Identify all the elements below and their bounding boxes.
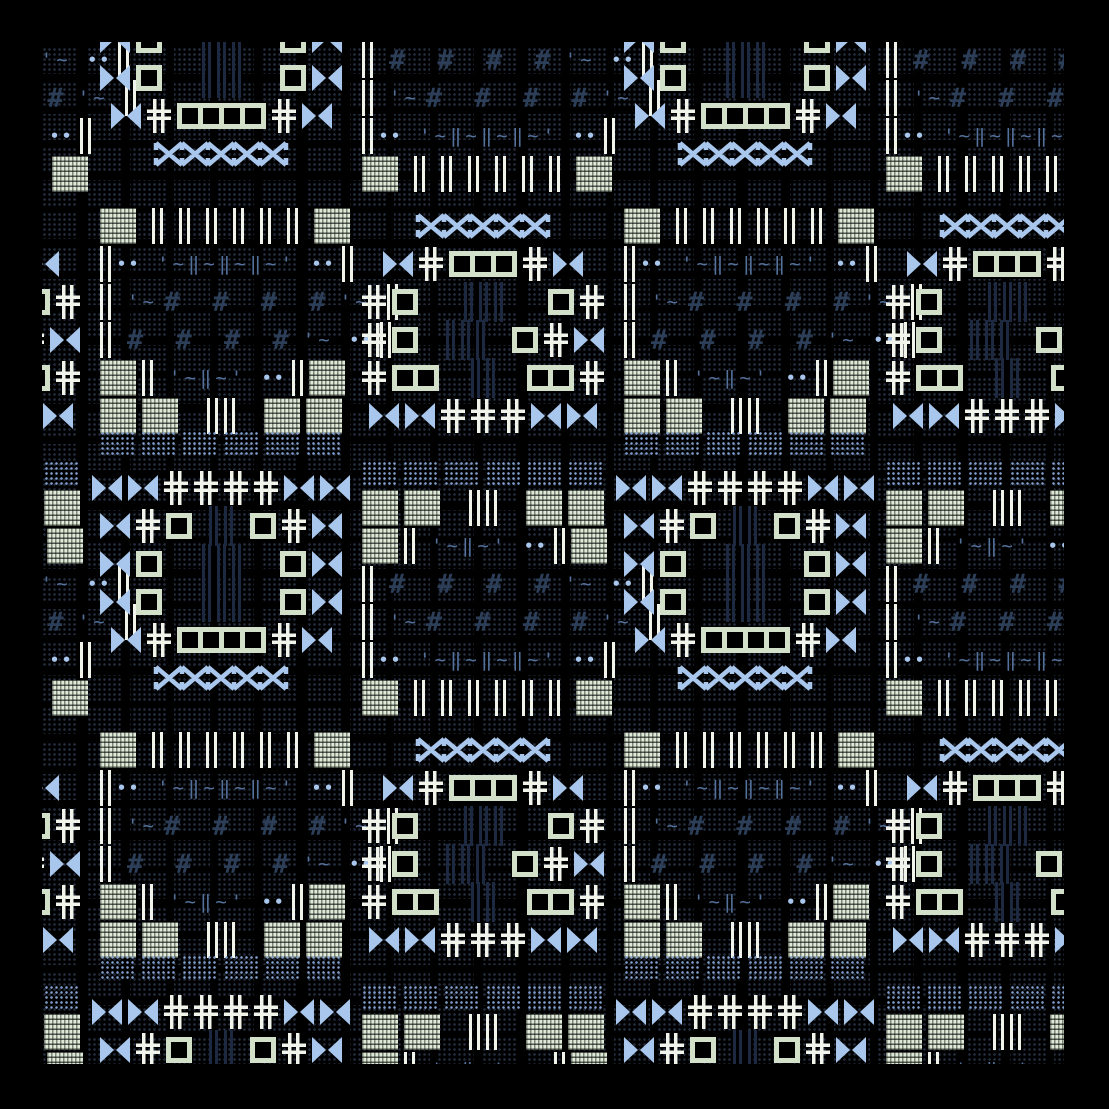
woven-block xyxy=(928,1014,964,1050)
faint-bar-motif xyxy=(756,582,765,622)
cross-stitch-icon xyxy=(796,99,820,133)
double-bar-motif xyxy=(207,398,218,434)
tile-row xyxy=(90,659,352,697)
double-bar-motif xyxy=(676,208,687,244)
square-frame-motif xyxy=(250,1037,276,1063)
woven-block xyxy=(264,398,300,434)
double-bar-motif xyxy=(441,680,452,716)
cross-stitch-icon xyxy=(362,847,386,881)
bowtie-icon xyxy=(43,927,73,953)
tile-row xyxy=(90,397,352,435)
blue-dot-block xyxy=(624,955,660,981)
tile-row: # # # #'~•• xyxy=(352,42,614,79)
faint-bar-motif xyxy=(748,506,757,546)
bowtie-icon xyxy=(826,627,856,653)
pattern-tile-sampler-flipped: '~‖~'••# # # #'~••'~# # # #'~••'~‖~‖~‖~'… xyxy=(876,459,1064,721)
dotted-skirt-row xyxy=(886,985,1064,1011)
woven-block xyxy=(142,398,178,434)
double-bar-motif xyxy=(992,680,1003,716)
faint-bar-motif xyxy=(748,1030,757,1064)
double-bar-motif xyxy=(100,808,111,844)
woven-block xyxy=(142,922,178,958)
faint-bar-motif xyxy=(733,506,742,546)
square-frame-motif xyxy=(392,365,439,391)
double-bar-motif xyxy=(260,732,271,768)
bowtie-icon xyxy=(312,42,342,53)
blue-dot-block xyxy=(706,431,742,457)
bowtie-icon xyxy=(553,251,583,277)
bowtie-icon xyxy=(128,999,158,1025)
woven-block xyxy=(830,398,866,434)
tile-row xyxy=(42,207,90,245)
cross-stitch-icon xyxy=(136,1033,160,1064)
stitch-text: # # # # xyxy=(389,45,559,76)
faint-bar-motif xyxy=(471,882,480,922)
square-frame-motif xyxy=(136,65,162,91)
stitch-text: '~ xyxy=(42,573,72,595)
blue-dot-block xyxy=(1010,461,1046,487)
double-bar-motif xyxy=(748,398,759,434)
double-bar-motif xyxy=(816,884,827,920)
bowtie-icon xyxy=(553,775,583,801)
square-frame-motif xyxy=(774,513,800,539)
woven-block xyxy=(52,156,88,192)
woven-block xyxy=(886,1052,922,1064)
bowtie-icon xyxy=(312,551,342,577)
square-frame-motif xyxy=(804,551,830,577)
stitch-dots: •• xyxy=(786,369,810,387)
blue-dot-block xyxy=(968,461,1004,487)
stitch-text: '~‖~' xyxy=(693,367,770,389)
bowtie-icon xyxy=(574,851,604,877)
cross-stitch-icon xyxy=(1047,247,1064,281)
tile-row xyxy=(876,489,1064,527)
tile-row xyxy=(90,135,352,173)
stitch-text: '~‖~‖~‖~' xyxy=(419,125,558,147)
faint-bar-motif xyxy=(1018,282,1027,322)
cross-stitch-icon xyxy=(886,361,910,395)
tile-rows: '~‖~'••# # # #'~••'~# # # #'~••'~‖~‖~‖~'… xyxy=(352,1013,614,1064)
double-bar-motif xyxy=(152,732,163,768)
stitch-dots: •• xyxy=(50,127,74,145)
cross-stitch-icon xyxy=(671,99,695,133)
blue-dot-block xyxy=(1051,985,1064,1011)
bowtie-icon xyxy=(50,851,80,877)
woven-block xyxy=(362,1052,398,1064)
double-bar-motif xyxy=(486,490,497,526)
stitch-dots: •• xyxy=(641,255,665,273)
blue-dot-block xyxy=(568,461,604,487)
double-bar-motif xyxy=(554,1052,565,1064)
double-bar-motif xyxy=(468,680,479,716)
faint-bar-motif xyxy=(1003,806,1012,846)
bowtie-icon xyxy=(531,927,561,953)
bowtie-icon xyxy=(42,251,59,277)
tile-row xyxy=(42,807,90,845)
woven-block xyxy=(838,732,874,768)
cross-stitch-icon xyxy=(886,323,910,357)
stitch-text: '~‖~' xyxy=(431,1059,508,1064)
double-bar-motif xyxy=(676,732,687,768)
double-bar-motif xyxy=(816,360,827,396)
double-bar-motif xyxy=(886,642,897,678)
faint-bar-motif xyxy=(232,58,241,98)
faint-bar-motif xyxy=(476,844,485,884)
tile-row: ••'~‖~‖~‖~'•• xyxy=(90,245,352,283)
blue-dot-block xyxy=(665,431,701,457)
woven-block xyxy=(100,922,136,958)
cross-stitch-icon xyxy=(943,247,967,281)
tile-row: ••'~‖~‖~‖~'•• xyxy=(42,117,90,155)
cross-stitch-icon xyxy=(806,509,830,543)
bowtie-icon xyxy=(844,475,874,501)
double-bar-motif xyxy=(362,604,373,640)
woven-block xyxy=(666,922,702,958)
double-bar-motif xyxy=(224,922,235,958)
square-frame-motif xyxy=(916,289,942,315)
bowtie-chain-icon xyxy=(153,141,289,167)
cross-stitch-icon xyxy=(580,285,604,319)
faint-bar-motif xyxy=(446,320,455,360)
tile-rows: '~‖~'••# # # #'~••'~# # # #'~••'~‖~‖~‖~'… xyxy=(42,42,90,193)
bowtie-icon xyxy=(405,927,435,953)
woven-block xyxy=(568,1014,604,1050)
cross-stitch-icon xyxy=(147,99,171,133)
faint-bar-motif xyxy=(1010,882,1019,922)
double-bar-motif xyxy=(100,284,111,320)
bowtie-icon xyxy=(100,551,130,577)
double-bar-motif xyxy=(554,528,565,564)
cross-stitch-icon xyxy=(362,885,386,919)
bowtie-icon xyxy=(652,475,682,501)
square-frame-motif xyxy=(280,65,306,91)
blue-dot-block xyxy=(265,955,301,981)
tile-row xyxy=(352,845,614,883)
square-frame-motif xyxy=(916,851,942,877)
faint-bar-motif xyxy=(988,806,997,846)
bowtie-chain-icon xyxy=(415,737,551,763)
square-frame-motif xyxy=(136,42,162,53)
tile-rows: '~‖~'••# # # #'~••'~# # # #'~••'~‖~‖~‖~'… xyxy=(876,42,1064,193)
woven-block xyxy=(309,884,345,920)
tile-row xyxy=(42,731,90,769)
woven-block xyxy=(362,528,398,564)
faint-bar-motif xyxy=(461,844,470,884)
cross-stitch-icon xyxy=(471,923,495,957)
tile-row xyxy=(42,845,90,883)
pattern-tile-sampler-flipped: '~‖~'••# # # #'~••'~# # # #'~••'~‖~‖~‖~'… xyxy=(352,42,614,197)
pattern-tile-sampler-flipped: '~‖~'••# # # #'~••'~# # # #'~••'~‖~‖~‖~'… xyxy=(42,42,90,197)
stitch-text: # # # # xyxy=(950,607,1064,638)
woven-block xyxy=(309,360,345,396)
woven-block xyxy=(100,360,136,396)
cross-stitch-icon xyxy=(224,471,248,505)
cross-stitch-icon xyxy=(282,1033,306,1064)
tile-row xyxy=(352,769,614,807)
faint-bar-motif xyxy=(741,544,750,584)
stitch-text: '~ xyxy=(127,291,158,313)
square-frame-motif xyxy=(690,513,716,539)
tile-row xyxy=(614,135,876,173)
tile-row xyxy=(876,155,1064,193)
faint-bar-motif xyxy=(471,358,480,398)
dotted-skirt-row xyxy=(886,461,1064,487)
cross-stitch-icon xyxy=(164,995,188,1029)
stitch-text: '~ xyxy=(127,815,158,837)
tile-row xyxy=(876,679,1064,717)
faint-bar-motif xyxy=(202,582,211,622)
tile-rows xyxy=(614,42,876,173)
blue-dot-block xyxy=(444,985,480,1011)
woven-block xyxy=(52,680,88,716)
tile-row xyxy=(614,621,876,659)
tile-row xyxy=(876,807,1064,845)
square-frame-motif xyxy=(916,813,942,839)
tile-row xyxy=(614,993,876,1031)
pattern-tile-sampler-flipped: '~‖~'••# # # #'~••'~# # # #'~••'~‖~‖~‖~'… xyxy=(876,983,1064,1064)
blue-dot-block xyxy=(830,955,866,981)
faint-bar-motif xyxy=(726,582,735,622)
bowtie-chain-icon xyxy=(415,213,551,239)
square-frame-motif xyxy=(973,251,1041,277)
tile-rows: ••'~‖~‖~‖~'••'~# # # #'~# # # #'~••'~‖~'… xyxy=(614,207,876,435)
tile-row xyxy=(42,397,90,435)
cross-stitch-icon xyxy=(523,771,547,805)
tile-row xyxy=(876,921,1064,959)
cross-stitch-icon xyxy=(1025,399,1049,433)
double-bar-motif xyxy=(287,208,298,244)
blue-dot-block xyxy=(748,955,784,981)
woven-block xyxy=(568,490,604,526)
tile-rows xyxy=(614,469,876,697)
double-bar-motif xyxy=(624,846,635,882)
woven-block xyxy=(788,398,824,434)
faint-bar-motif xyxy=(464,806,473,846)
stitch-dots: •• xyxy=(524,537,548,555)
tile-rows: '~‖~'••# # # #'~••'~# # # #'~••'~‖~‖~‖~'… xyxy=(42,489,90,717)
tile-row: '~# # # #'~ xyxy=(614,807,876,845)
woven-block xyxy=(624,398,660,434)
pattern-tile-medallion xyxy=(352,721,614,983)
stitch-dots: •• xyxy=(312,255,336,273)
faint-bar-motif xyxy=(479,282,488,322)
stitch-text: '~‖~‖~‖~' xyxy=(419,649,558,671)
double-bar-motif xyxy=(100,246,111,282)
cross-stitch-icon xyxy=(886,809,910,843)
blue-dot-block xyxy=(141,431,177,457)
stitch-dots: •• xyxy=(836,779,860,797)
double-bar-motif xyxy=(468,156,479,192)
tile-row xyxy=(90,97,352,135)
blue-dot-block xyxy=(1051,461,1064,487)
tile-row xyxy=(352,921,614,959)
stitch-text: # # # # xyxy=(651,325,821,356)
faint-bar-motif xyxy=(741,582,750,622)
cross-stitch-icon xyxy=(718,995,742,1029)
square-frame-motif xyxy=(449,775,517,801)
blue-dot-block xyxy=(968,985,1004,1011)
tile-row xyxy=(90,42,352,59)
stitch-dots: •• xyxy=(312,779,336,797)
tile-rows: '~‖~'••# # # #'~••'~# # # #'~••'~‖~‖~‖~'… xyxy=(352,42,614,193)
tile-row: '~‖~'•• xyxy=(876,1051,1064,1064)
stitch-text: '~ xyxy=(565,49,596,71)
tile-rows: ••'~‖~‖~‖~'••'~# # # #'~# # # #'~••'~‖~'… xyxy=(90,207,352,435)
woven-block xyxy=(47,528,83,564)
tile-row xyxy=(42,283,90,321)
cross-stitch-icon xyxy=(580,361,604,395)
faint-bar-motif xyxy=(985,844,994,884)
square-frame-motif xyxy=(916,365,963,391)
stitch-text: '~‖~' xyxy=(955,1059,1032,1064)
cross-stitch-icon xyxy=(501,399,525,433)
double-bar-motif xyxy=(207,922,218,958)
double-bar-motif xyxy=(703,208,714,244)
blue-dot-block xyxy=(403,461,439,487)
faint-bar-motif xyxy=(726,58,735,98)
woven-block xyxy=(886,1014,922,1050)
faint-bar-motif xyxy=(486,358,495,398)
square-frame-motif xyxy=(449,251,517,277)
tile-row xyxy=(614,42,876,59)
double-bar-motif xyxy=(362,42,373,78)
stitch-text: '~‖~‖~‖~' xyxy=(943,125,1064,147)
stitch-text: '~ xyxy=(303,329,334,351)
double-bar-motif xyxy=(624,770,635,806)
tile-row xyxy=(352,807,614,845)
blue-dot-block xyxy=(624,431,660,457)
stitch-text: # # # # xyxy=(651,849,821,880)
pattern-tile-medallion-flipped xyxy=(614,459,876,721)
double-bar-motif xyxy=(731,398,742,434)
bowtie-icon xyxy=(320,475,350,501)
bowtie-icon xyxy=(893,403,923,429)
stitch-text: # # # # xyxy=(913,569,1064,600)
tile-row: # # # #'~•• xyxy=(42,42,90,79)
tile-row xyxy=(352,283,614,321)
double-bar-motif xyxy=(179,208,190,244)
double-bar-motif xyxy=(206,732,217,768)
tile-row: '~‖~'•• xyxy=(352,1051,614,1064)
square-frame-motif xyxy=(973,775,1041,801)
stitch-dots: •• xyxy=(574,651,598,669)
tile-row xyxy=(90,583,352,621)
woven-block xyxy=(100,398,136,434)
bowtie-icon xyxy=(635,103,665,129)
square-frame-motif xyxy=(136,589,162,615)
tile-row xyxy=(352,359,614,397)
stitch-text: # # # # xyxy=(127,849,297,880)
bowtie-icon xyxy=(1055,403,1064,429)
double-bar-motif xyxy=(362,118,373,154)
double-bar-motif xyxy=(784,208,795,244)
tile-row: # # # #'~•• xyxy=(90,321,352,359)
pattern-tile-sampler-flipped: '~‖~'••# # # #'~••'~# # # #'~••'~‖~‖~‖~'… xyxy=(352,459,614,721)
blue-dot-block xyxy=(927,461,963,487)
square-frame-motif xyxy=(1051,365,1064,391)
woven-block xyxy=(576,680,612,716)
blue-dot-block xyxy=(265,431,301,457)
tile-row xyxy=(352,883,614,921)
square-frame-motif xyxy=(392,851,418,877)
stitch-text: '~ xyxy=(42,49,72,71)
faint-bar-motif xyxy=(479,806,488,846)
bowtie-icon xyxy=(111,103,141,129)
tile-row xyxy=(876,321,1064,359)
cross-stitch-icon xyxy=(796,623,820,657)
double-bar-motif xyxy=(757,208,768,244)
cross-stitch-icon xyxy=(671,623,695,657)
woven-block xyxy=(362,1014,398,1050)
blue-dot-block xyxy=(486,461,522,487)
bowtie-icon xyxy=(616,475,646,501)
cross-stitch-icon xyxy=(419,247,443,281)
cross-stitch-icon xyxy=(965,399,989,433)
cross-stitch-icon xyxy=(254,471,278,505)
pattern-viewport: '~‖~'••# # # #'~••'~# # # #'~••'~‖~‖~‖~'… xyxy=(42,42,1064,1064)
tile-rows xyxy=(352,207,614,435)
double-bar-motif xyxy=(666,360,677,396)
bowtie-icon xyxy=(567,403,597,429)
pattern-tile-sampler-flipped: '~‖~'••# # # #'~••'~# # # #'~••'~‖~‖~‖~'… xyxy=(42,459,90,721)
tile-row xyxy=(614,507,876,545)
tile-row xyxy=(876,359,1064,397)
blue-dot-block xyxy=(182,955,218,981)
cross-stitch-icon xyxy=(660,509,684,543)
woven-block xyxy=(264,922,300,958)
faint-bar-motif xyxy=(726,544,735,584)
pattern-tile-medallion xyxy=(352,197,614,459)
bowtie-icon xyxy=(302,627,332,653)
bowtie-icon xyxy=(624,42,654,53)
pattern-tile-medallion-flipped xyxy=(614,983,876,1064)
woven-block xyxy=(576,156,612,192)
stitch-text: '~ xyxy=(827,853,858,875)
tile-rows xyxy=(42,731,90,959)
double-bar-motif xyxy=(748,922,759,958)
cross-stitch-icon xyxy=(995,399,1019,433)
tile-row xyxy=(352,207,614,245)
blue-dot-block xyxy=(224,431,260,457)
square-frame-motif xyxy=(527,365,574,391)
stitch-text: '~‖~' xyxy=(955,535,1032,557)
bowtie-icon xyxy=(836,65,866,91)
stitch-text: '~‖~‖~‖~' xyxy=(157,777,296,799)
double-bar-motif xyxy=(992,156,1003,192)
bowtie-icon xyxy=(128,475,158,501)
double-bar-motif xyxy=(886,42,897,78)
woven-block xyxy=(314,208,350,244)
pattern-tile-sampler-flipped: '~‖~'••# # # #'~••'~# # # #'~••'~‖~‖~‖~'… xyxy=(42,983,90,1064)
stitch-dots: •• xyxy=(574,127,598,145)
square-frame-motif xyxy=(774,1037,800,1063)
faint-bar-motif xyxy=(446,844,455,884)
woven-block xyxy=(362,490,398,526)
double-bar-motif xyxy=(1046,680,1057,716)
blue-dot-block xyxy=(886,985,922,1011)
cross-stitch-icon xyxy=(56,285,80,319)
stitch-text: # # # # xyxy=(42,607,72,638)
tile-row xyxy=(90,545,352,583)
blue-dot-block xyxy=(141,955,177,981)
double-bar-motif xyxy=(811,208,822,244)
double-bar-motif xyxy=(624,246,635,282)
woven-block xyxy=(362,680,398,716)
pattern-tile-medallion-flipped xyxy=(90,459,352,721)
blue-dot-block xyxy=(224,955,260,981)
tile-row: ••'~‖~‖~‖~'•• xyxy=(42,641,90,679)
double-bar-motif xyxy=(730,208,741,244)
